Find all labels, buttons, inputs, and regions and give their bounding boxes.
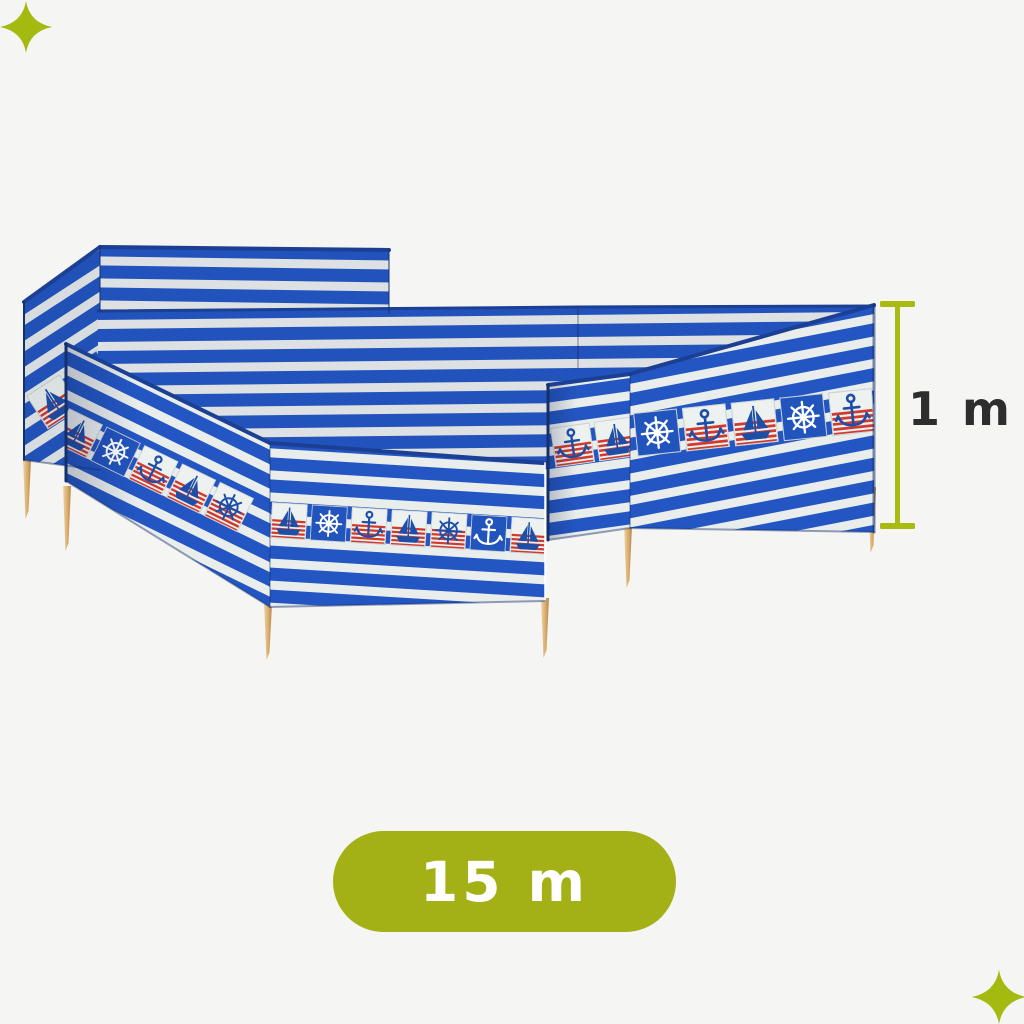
wooden-pole: [624, 526, 632, 588]
sparkle-icon: [0, 1, 52, 53]
wooden-pole: [541, 598, 549, 658]
wooden-pole: [264, 604, 272, 660]
sparkle-icon: [972, 970, 1024, 1024]
wooden-pole: [63, 486, 71, 551]
product-image-stage: 1 m 15 m: [0, 0, 1024, 1024]
length-dimension-label: 15 m: [420, 850, 589, 914]
wooden-pole: [23, 460, 31, 519]
near-right-panel-a: [542, 368, 638, 548]
height-dimension-label: 1 m: [908, 382, 1013, 436]
length-dimension-badge: 15 m: [333, 831, 676, 932]
